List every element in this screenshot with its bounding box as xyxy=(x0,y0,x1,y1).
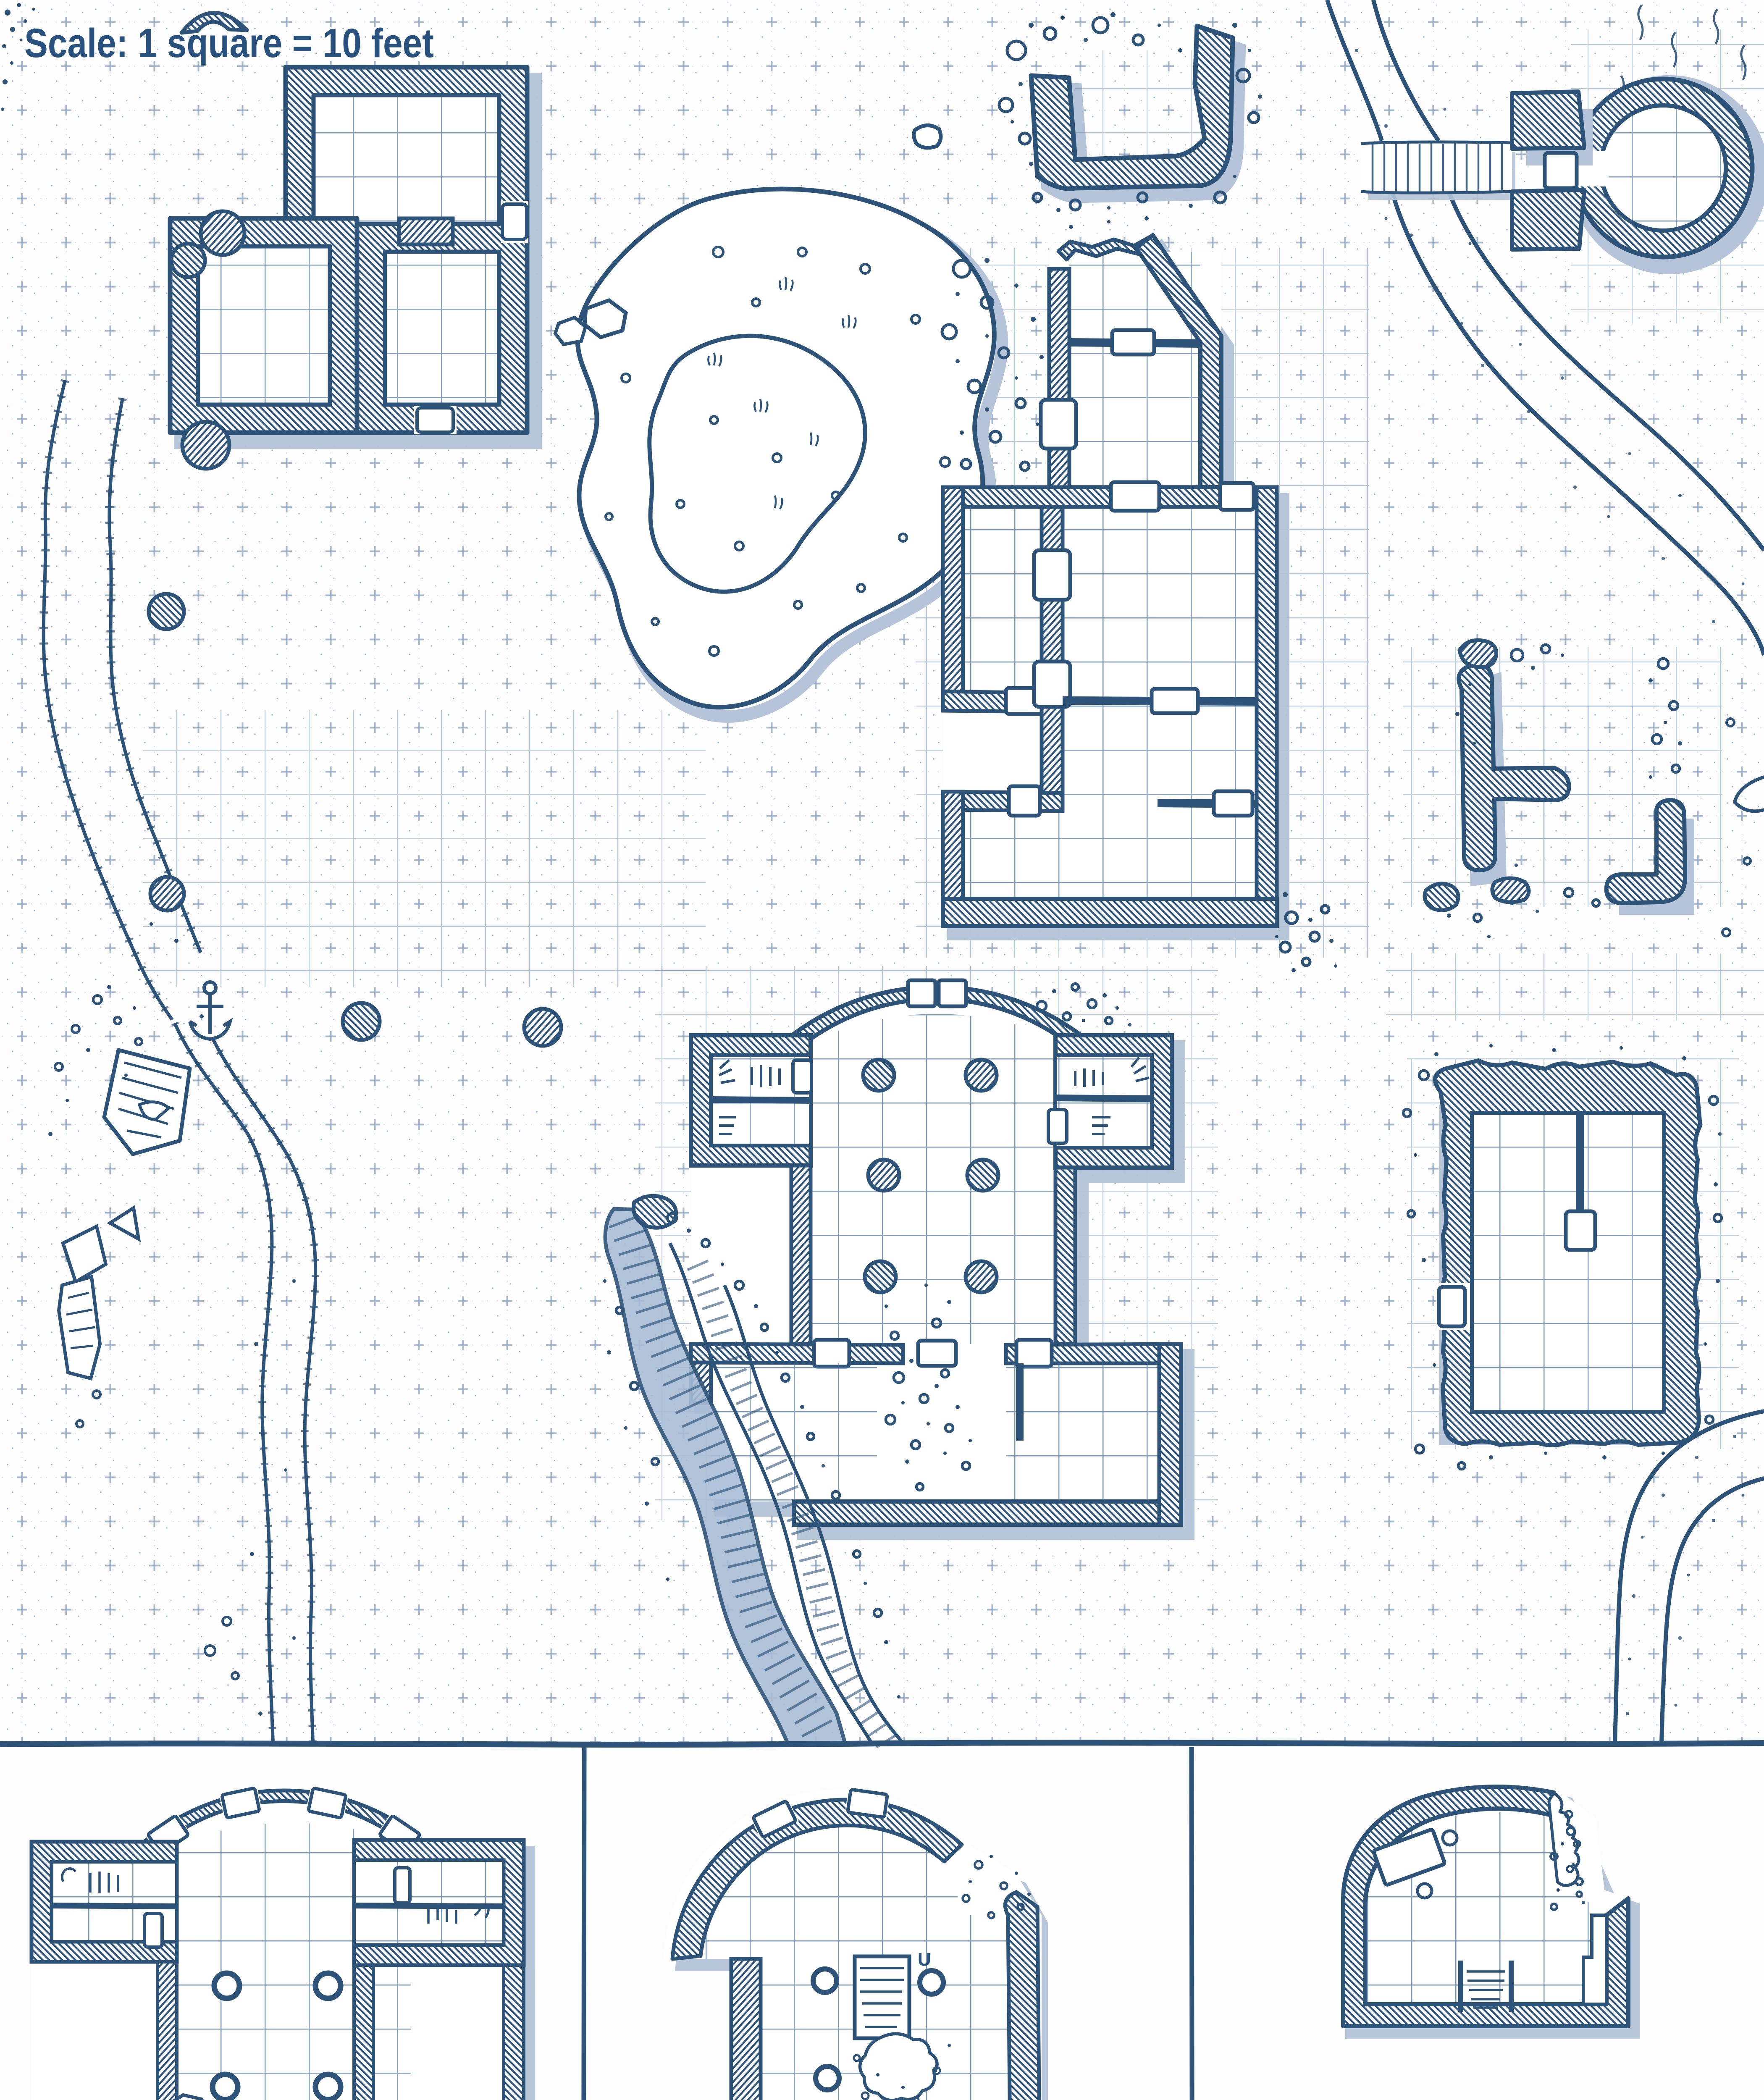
svg-text:Scale: 1 square = 10 feet: Scale: 1 square = 10 feet xyxy=(24,20,434,66)
svg-text:U: U xyxy=(918,1949,931,1970)
